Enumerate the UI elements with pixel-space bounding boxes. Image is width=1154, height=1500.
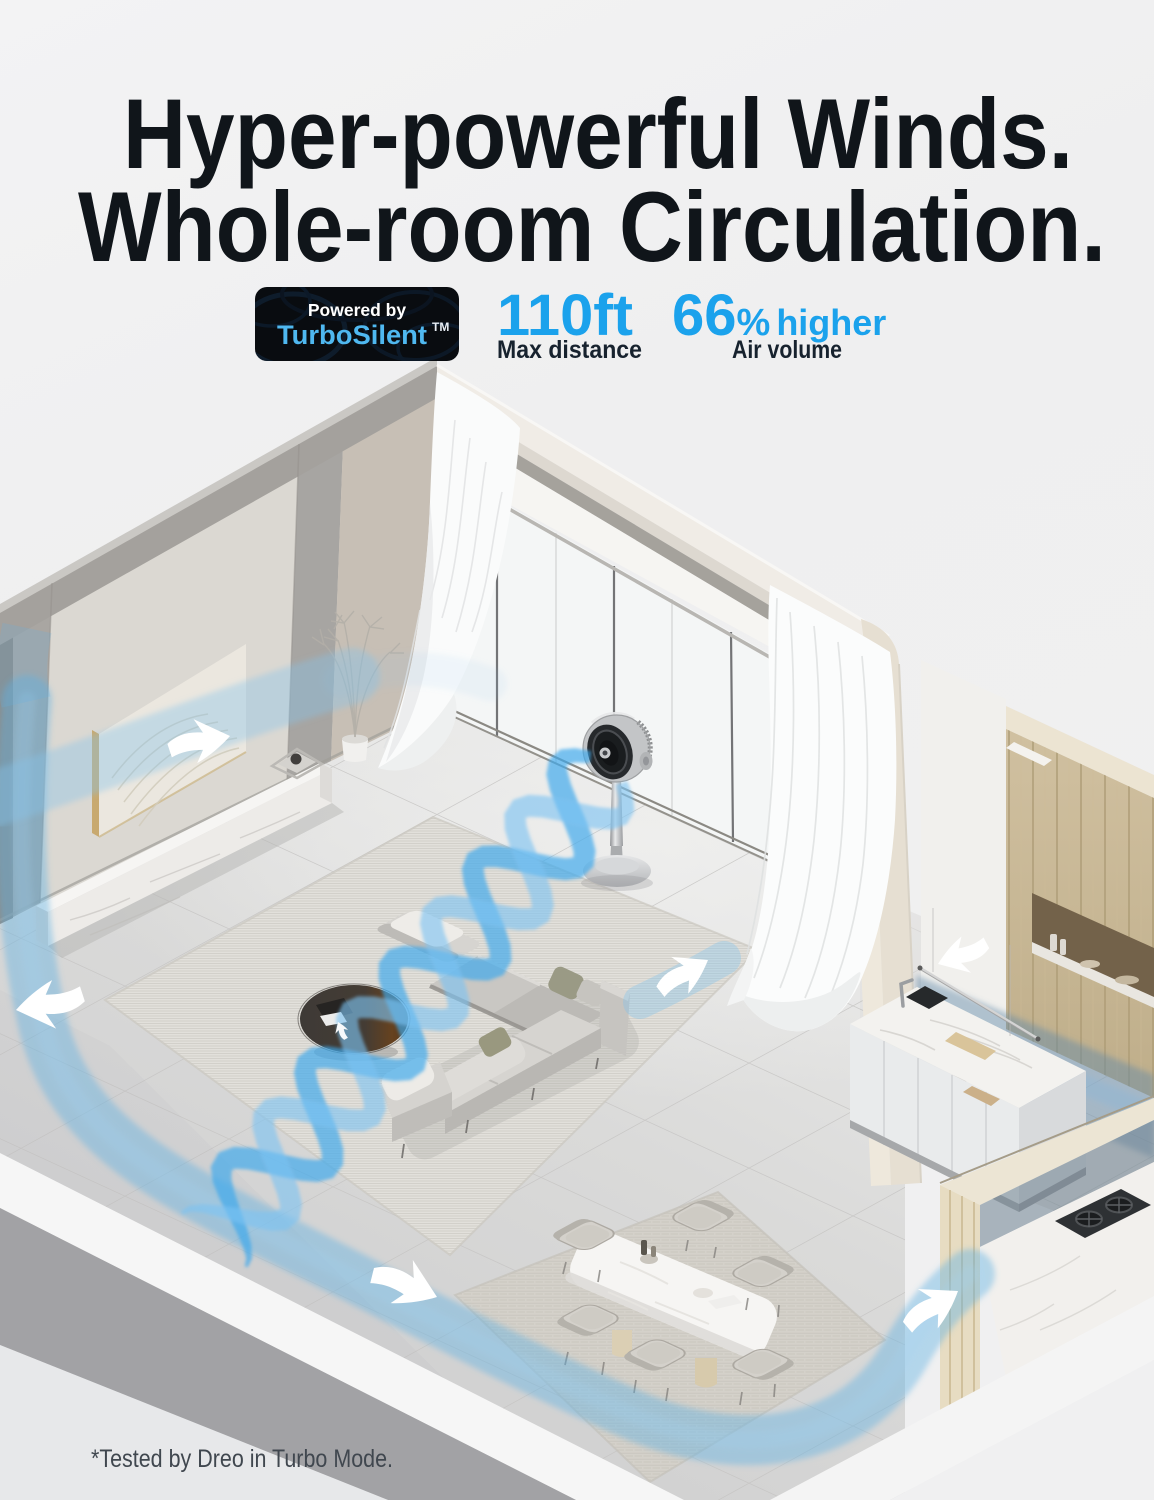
svg-text:Air volume: Air volume [732, 336, 842, 364]
svg-text:Max distance: Max distance [497, 336, 642, 364]
svg-text:*Tested by Dreo in Turbo Mode.: *Tested by Dreo in Turbo Mode. [91, 1445, 393, 1473]
svg-text:TurboSilent: TurboSilent [277, 320, 427, 350]
svg-text:Powered by: Powered by [308, 300, 406, 320]
svg-text:TM: TM [432, 320, 449, 334]
svg-text:Whole-room Circulation.: Whole-room Circulation. [78, 171, 1106, 282]
